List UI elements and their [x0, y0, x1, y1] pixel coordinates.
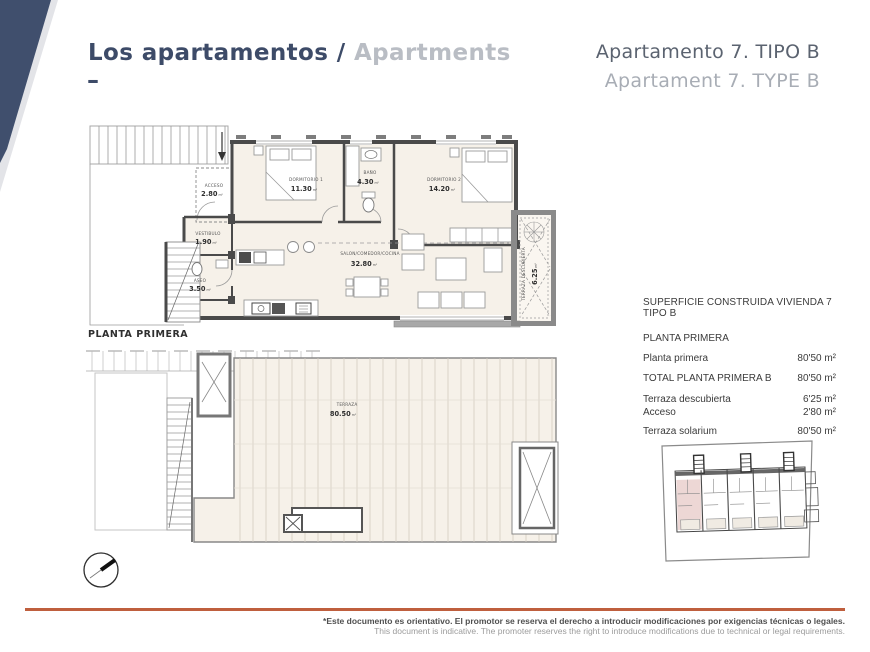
room-aseo-label: ASEO: [194, 278, 207, 283]
room-terraza-desc-label: TERRAZA DESCUBIERTA: [521, 247, 526, 302]
row-value: 6'25 m²: [803, 393, 836, 406]
stair-shaft: [198, 354, 230, 416]
row-value: 80'50 m²: [797, 352, 836, 365]
room-terraza-label: TERRAZA: [336, 402, 358, 407]
page-title-en: Apartments: [354, 40, 511, 66]
table-row: Terraza descubierta 6'25 m²: [643, 393, 836, 406]
surface-table: SUPERFICIE CONSTRUIDA VIVIENDA 7 TIPO B …: [643, 297, 836, 438]
room-acceso: ACCESO 2.80m²: [196, 168, 232, 222]
surface-table-title: SUPERFICIE CONSTRUIDA VIVIENDA 7 TIPO B: [643, 297, 836, 319]
room-acceso-label: ACCESO: [205, 183, 224, 188]
room-dormitorio2-label: DORMITORIO 2: [427, 177, 461, 182]
table-row: TOTAL PLANTA PRIMERA B 80'50 m²: [643, 372, 836, 385]
room-vestibulo-area: 1.90: [195, 238, 212, 246]
row-value: 80'50 m²: [797, 425, 836, 438]
footer-disclaimer: *Este documento es orientativo. El promo…: [323, 616, 845, 636]
exterior-stairs: [90, 126, 228, 164]
sink-icon: [361, 148, 381, 161]
room-dormitorio2-area: 14.20: [429, 185, 450, 193]
room-salon-label: SALON/COMEDOR/COCINA: [340, 251, 399, 256]
room-dormitorio1-area: 11.30: [291, 185, 312, 193]
room-bano-label: BAÑO: [364, 170, 377, 175]
toilet-icon: [362, 192, 375, 198]
plan-upper-caption: PLANTA PRIMERA: [88, 329, 188, 340]
room-vestibulo-label: VESTIBULO: [195, 231, 221, 236]
right-shaft: [512, 442, 558, 534]
page-title-es: Los apartamentos: [88, 40, 328, 66]
planter-element: [284, 508, 362, 532]
north-compass-icon: [78, 546, 128, 596]
page-title-separator: /: [328, 40, 354, 66]
balcony-slab: [394, 321, 520, 327]
room-terraza-desc-area: 6.25: [531, 268, 539, 285]
room-bano-area: 4.30: [357, 178, 374, 186]
unit-title-es: Apartamento 7. TIPO B: [596, 38, 820, 67]
floorplan-terraza-solarium: TERRAZA 80.50m²: [84, 348, 562, 548]
unit-title-en: Apartament 7. TYPE B: [596, 67, 820, 96]
room-terraza-area: 80.50: [330, 410, 351, 418]
table-row: Acceso 2'80 m²: [643, 406, 836, 419]
roof-ticks: [236, 135, 512, 139]
room-aseo-area: 3.50: [189, 285, 206, 293]
spiral-stair-icon: [524, 222, 544, 242]
solarium-stair: [167, 398, 192, 542]
unit-header: Apartamento 7. TIPO B Apartament 7. TYPE…: [596, 38, 820, 96]
footer-accent-line: [25, 608, 845, 611]
row-label: Planta primera: [643, 352, 708, 365]
room-salon-area: 32.80: [351, 260, 372, 268]
floorplan-planta-primera: ACCESO 2.80m²: [84, 122, 562, 340]
svg-text:2.80m²: 2.80m²: [201, 190, 223, 198]
table-row: Planta primera 80'50 m²: [643, 352, 836, 365]
disclaimer-es: *Este documento es orientativo. El promo…: [323, 616, 845, 626]
row-label: Terraza solarium: [643, 425, 717, 438]
row-label: TOTAL PLANTA PRIMERA B: [643, 372, 772, 385]
solarium-deck: TERRAZA 80.50m²: [194, 358, 556, 542]
wardrobe-icon: [450, 228, 512, 242]
row-value: 80'50 m²: [797, 372, 836, 385]
left-open-area: [95, 373, 167, 530]
disclaimer-en: This document is indicative. The promote…: [323, 626, 845, 636]
page-title: Los apartamentos / Apartments: [88, 40, 511, 66]
row-label: Terraza descubierta: [643, 393, 731, 406]
row-label: Acceso: [643, 406, 676, 419]
room-dormitorio1-label: DORMITORIO 1: [289, 177, 323, 182]
title-dash-mark: –: [87, 66, 99, 94]
table-row: Terraza solarium 80'50 m²: [643, 425, 836, 438]
room-acceso-area: 2.80: [201, 190, 218, 198]
surface-table-section: PLANTA PRIMERA: [643, 333, 836, 344]
row-value: 2'80 m²: [803, 406, 836, 419]
site-key-plan: [648, 440, 866, 568]
brochure-page: Los apartamentos / Apartments – Apartame…: [0, 0, 870, 652]
